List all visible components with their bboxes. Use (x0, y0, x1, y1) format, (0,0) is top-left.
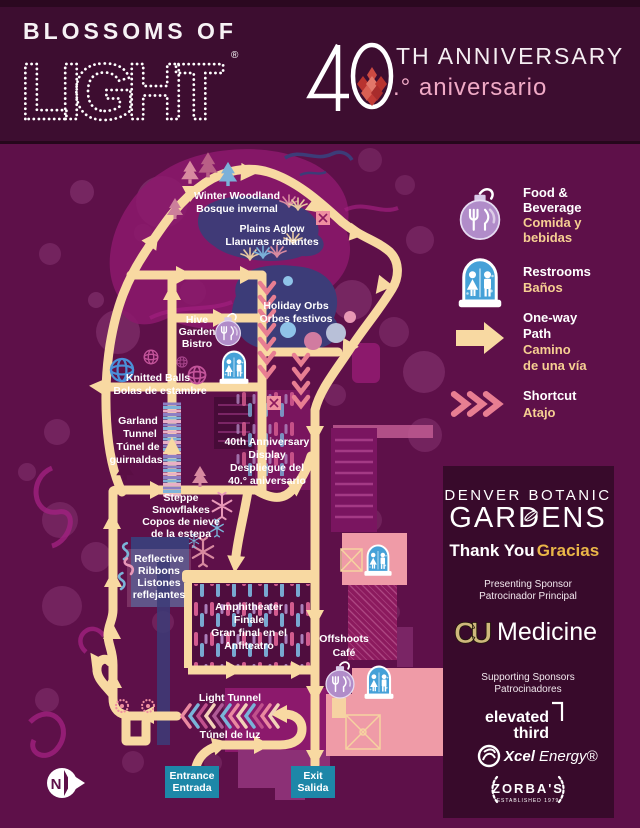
svg-text:Atajo: Atajo (523, 405, 556, 420)
blossoms-of-light-map-poster: BLOSSOMS OF LIGHT ® TH ANNIVERSARY .° an… (0, 0, 640, 828)
cu-logo-mark: CU (454, 617, 491, 650)
svg-text:Xcel: Xcel (503, 748, 536, 765)
legend-shortcut-en: Shortcut (523, 388, 577, 403)
brand-title-line1: BLOSSOMS OF (23, 18, 237, 44)
label-light-tunnel: Light Tunnel (199, 692, 261, 704)
svg-text:Gran final en el: Gran final en el (211, 627, 287, 639)
svg-text:Anfiteatro: Anfiteatro (224, 640, 274, 652)
svg-text:Snowflakes: Snowflakes (152, 504, 210, 516)
label-steppe-snowflakes: Steppe (163, 492, 198, 504)
svg-text:Comida y: Comida y (523, 215, 582, 230)
svg-text:reflejantes: reflejantes (133, 589, 186, 601)
svg-text:Ribbons: Ribbons (138, 565, 180, 577)
svg-text:Listones: Listones (137, 577, 180, 589)
svg-text:Display: Display (248, 449, 286, 461)
svg-text:Finale: Finale (234, 614, 265, 626)
restroom-icon-hive (220, 352, 249, 384)
svg-text:Baños: Baños (523, 280, 563, 295)
exit-label-en: Exit (303, 770, 323, 782)
svg-text:Bolas de estambre: Bolas de estambre (113, 385, 207, 397)
label-reflective-ribbons: Reflective (134, 553, 184, 565)
sponsor-panel: DENVER BOTANIC GARDENS Thank You Gracias… (443, 466, 614, 818)
cu-medicine-wordmark: Medicine (497, 618, 597, 646)
presenting-sponsor-label-en: Presenting Sponsor (484, 579, 573, 590)
compass-letter: N (51, 776, 62, 793)
gracias-label: Gracias (537, 541, 599, 560)
label-offshoots-cafe: Offshoots (319, 633, 369, 645)
label-hive-garden-bistro: Hive (186, 314, 208, 326)
brand-title-line2-dotted: LIGHT (20, 47, 228, 136)
presenting-sponsor-label-es: Patrocinador Principal (479, 591, 577, 602)
svg-text:Camino: Camino (523, 342, 571, 357)
restroom-icon-offshoots (365, 667, 394, 699)
small-structure (397, 627, 413, 667)
label-holiday-orbs: Holiday Orbs (263, 300, 329, 312)
svg-text:elevated: elevated (485, 709, 549, 726)
restroom-icon-east (364, 545, 391, 575)
anniversary-suffix: TH ANNIVERSARY (396, 43, 624, 69)
svg-text:Tunnel: Tunnel (123, 428, 157, 440)
label-knitted-balls: Knitted Balls (126, 372, 190, 384)
restroom-snowglobe-icon (459, 260, 502, 308)
svg-text:Bosque invernal: Bosque invernal (196, 203, 278, 215)
entrance-label-en: Entrance (170, 770, 215, 782)
label-amphitheater-finale: Amphitheater (215, 601, 283, 613)
label-garland-tunnel: Garland (118, 415, 158, 427)
entrance-badge: Entrance Entrada (165, 766, 219, 798)
svg-text:Túnel de luz: Túnel de luz (200, 729, 261, 741)
gate-marker-icon (316, 211, 330, 225)
svg-text:ESTABLISHED 1979: ESTABLISHED 1979 (497, 798, 560, 804)
svg-text:de la estepa: de la estepa (151, 528, 211, 540)
legend-oneway-en1: One-way (523, 310, 578, 325)
registered-mark: ® (231, 50, 239, 61)
svg-text:40.° aniversario: 40.° aniversario (228, 475, 306, 487)
svg-text:Energy®: Energy® (539, 748, 599, 765)
svg-text:Llanuras radiantes: Llanuras radiantes (225, 236, 319, 248)
svg-text:Path: Path (523, 326, 551, 341)
exit-badge: Exit Salida (291, 766, 335, 798)
svg-text:Café: Café (333, 647, 356, 659)
svg-text:Túnel de: Túnel de (116, 441, 159, 453)
small-tan-structure (332, 698, 346, 718)
garland-tunnel-graphic (163, 402, 181, 497)
poster-canvas: BLOSSOMS OF LIGHT ® TH ANNIVERSARY .° an… (0, 0, 640, 828)
label-40th-display: 40th Anniversary (225, 436, 310, 448)
gate-marker-icon (267, 396, 281, 410)
anniversary-spanish: .° aniversario (393, 74, 547, 101)
entrance-label-es: Entrada (172, 782, 211, 794)
supporting-sponsors-label-en: Supporting Sponsors (481, 672, 574, 683)
supporting-sponsors-label-es: Patrocinadores (494, 684, 561, 695)
label-winter-woodland: Winter Woodland (194, 190, 280, 202)
svg-text:Bistro: Bistro (182, 338, 212, 350)
svg-text:bebidas: bebidas (523, 230, 572, 245)
svg-text:Beverage: Beverage (523, 200, 582, 215)
svg-text:guirnaldas: guirnaldas (109, 454, 162, 466)
zorbas-logo: ZORBA'S ESTABLISHED 1979 (492, 777, 564, 804)
legend-restrooms-en: Restrooms (523, 264, 591, 279)
svg-text:Garden: Garden (179, 326, 216, 338)
svg-text:third: third (513, 725, 549, 742)
label-plains-aglow: Plains Aglow (240, 223, 306, 235)
svg-text:Copos de nieve: Copos de nieve (142, 516, 220, 528)
exit-label-es: Salida (298, 782, 329, 794)
svg-text:de una vía: de una vía (523, 358, 587, 373)
svg-text:Despliegue del: Despliegue del (230, 462, 304, 474)
thank-you-label: Thank You (449, 541, 534, 560)
svg-text:Orbes festivos: Orbes festivos (260, 313, 333, 325)
legend-food-en1: Food & (523, 185, 568, 200)
svg-text:ZORBA'S: ZORBA'S (492, 781, 564, 796)
